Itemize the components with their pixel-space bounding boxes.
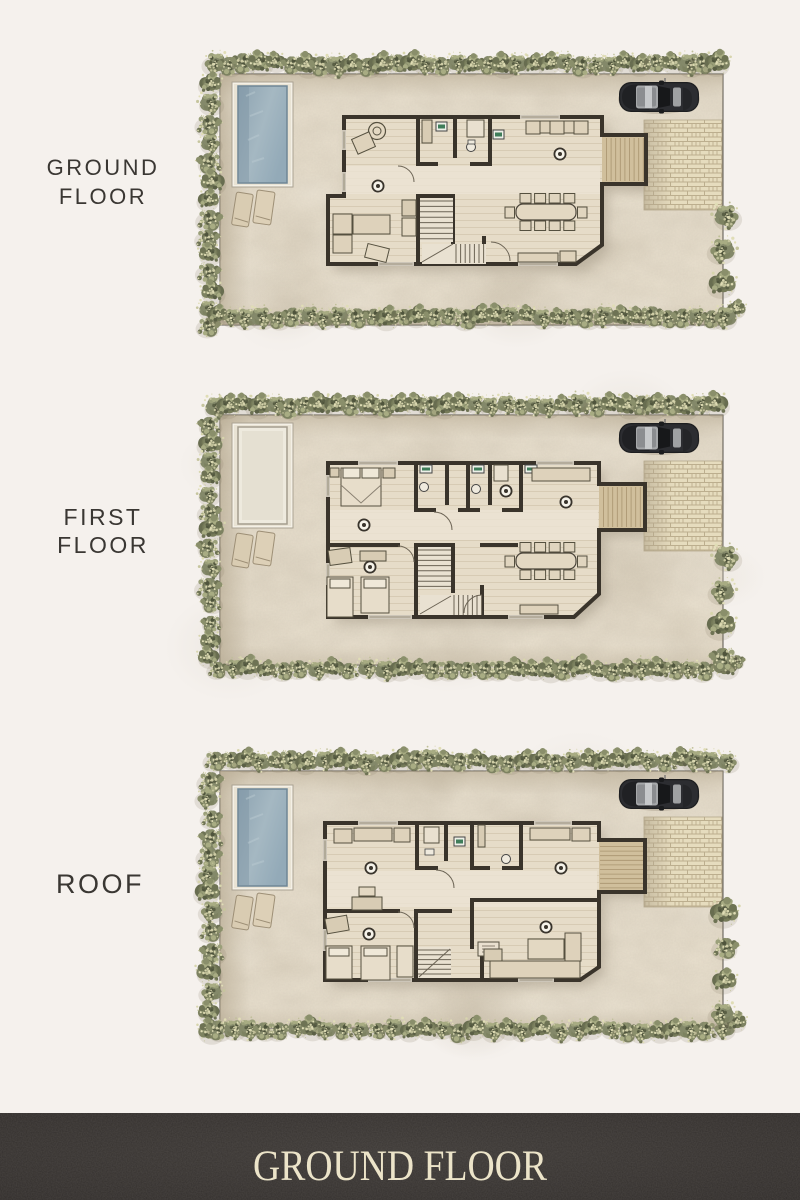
- svg-text:FLOOR: FLOOR: [59, 184, 147, 209]
- svg-text:GROUND: GROUND: [47, 155, 160, 180]
- svg-text:ROOF: ROOF: [56, 869, 144, 899]
- svg-text:FIRST: FIRST: [64, 504, 143, 530]
- svg-text:GROUND FLOOR: GROUND FLOOR: [253, 1143, 547, 1190]
- svg-text:FLOOR: FLOOR: [57, 532, 149, 558]
